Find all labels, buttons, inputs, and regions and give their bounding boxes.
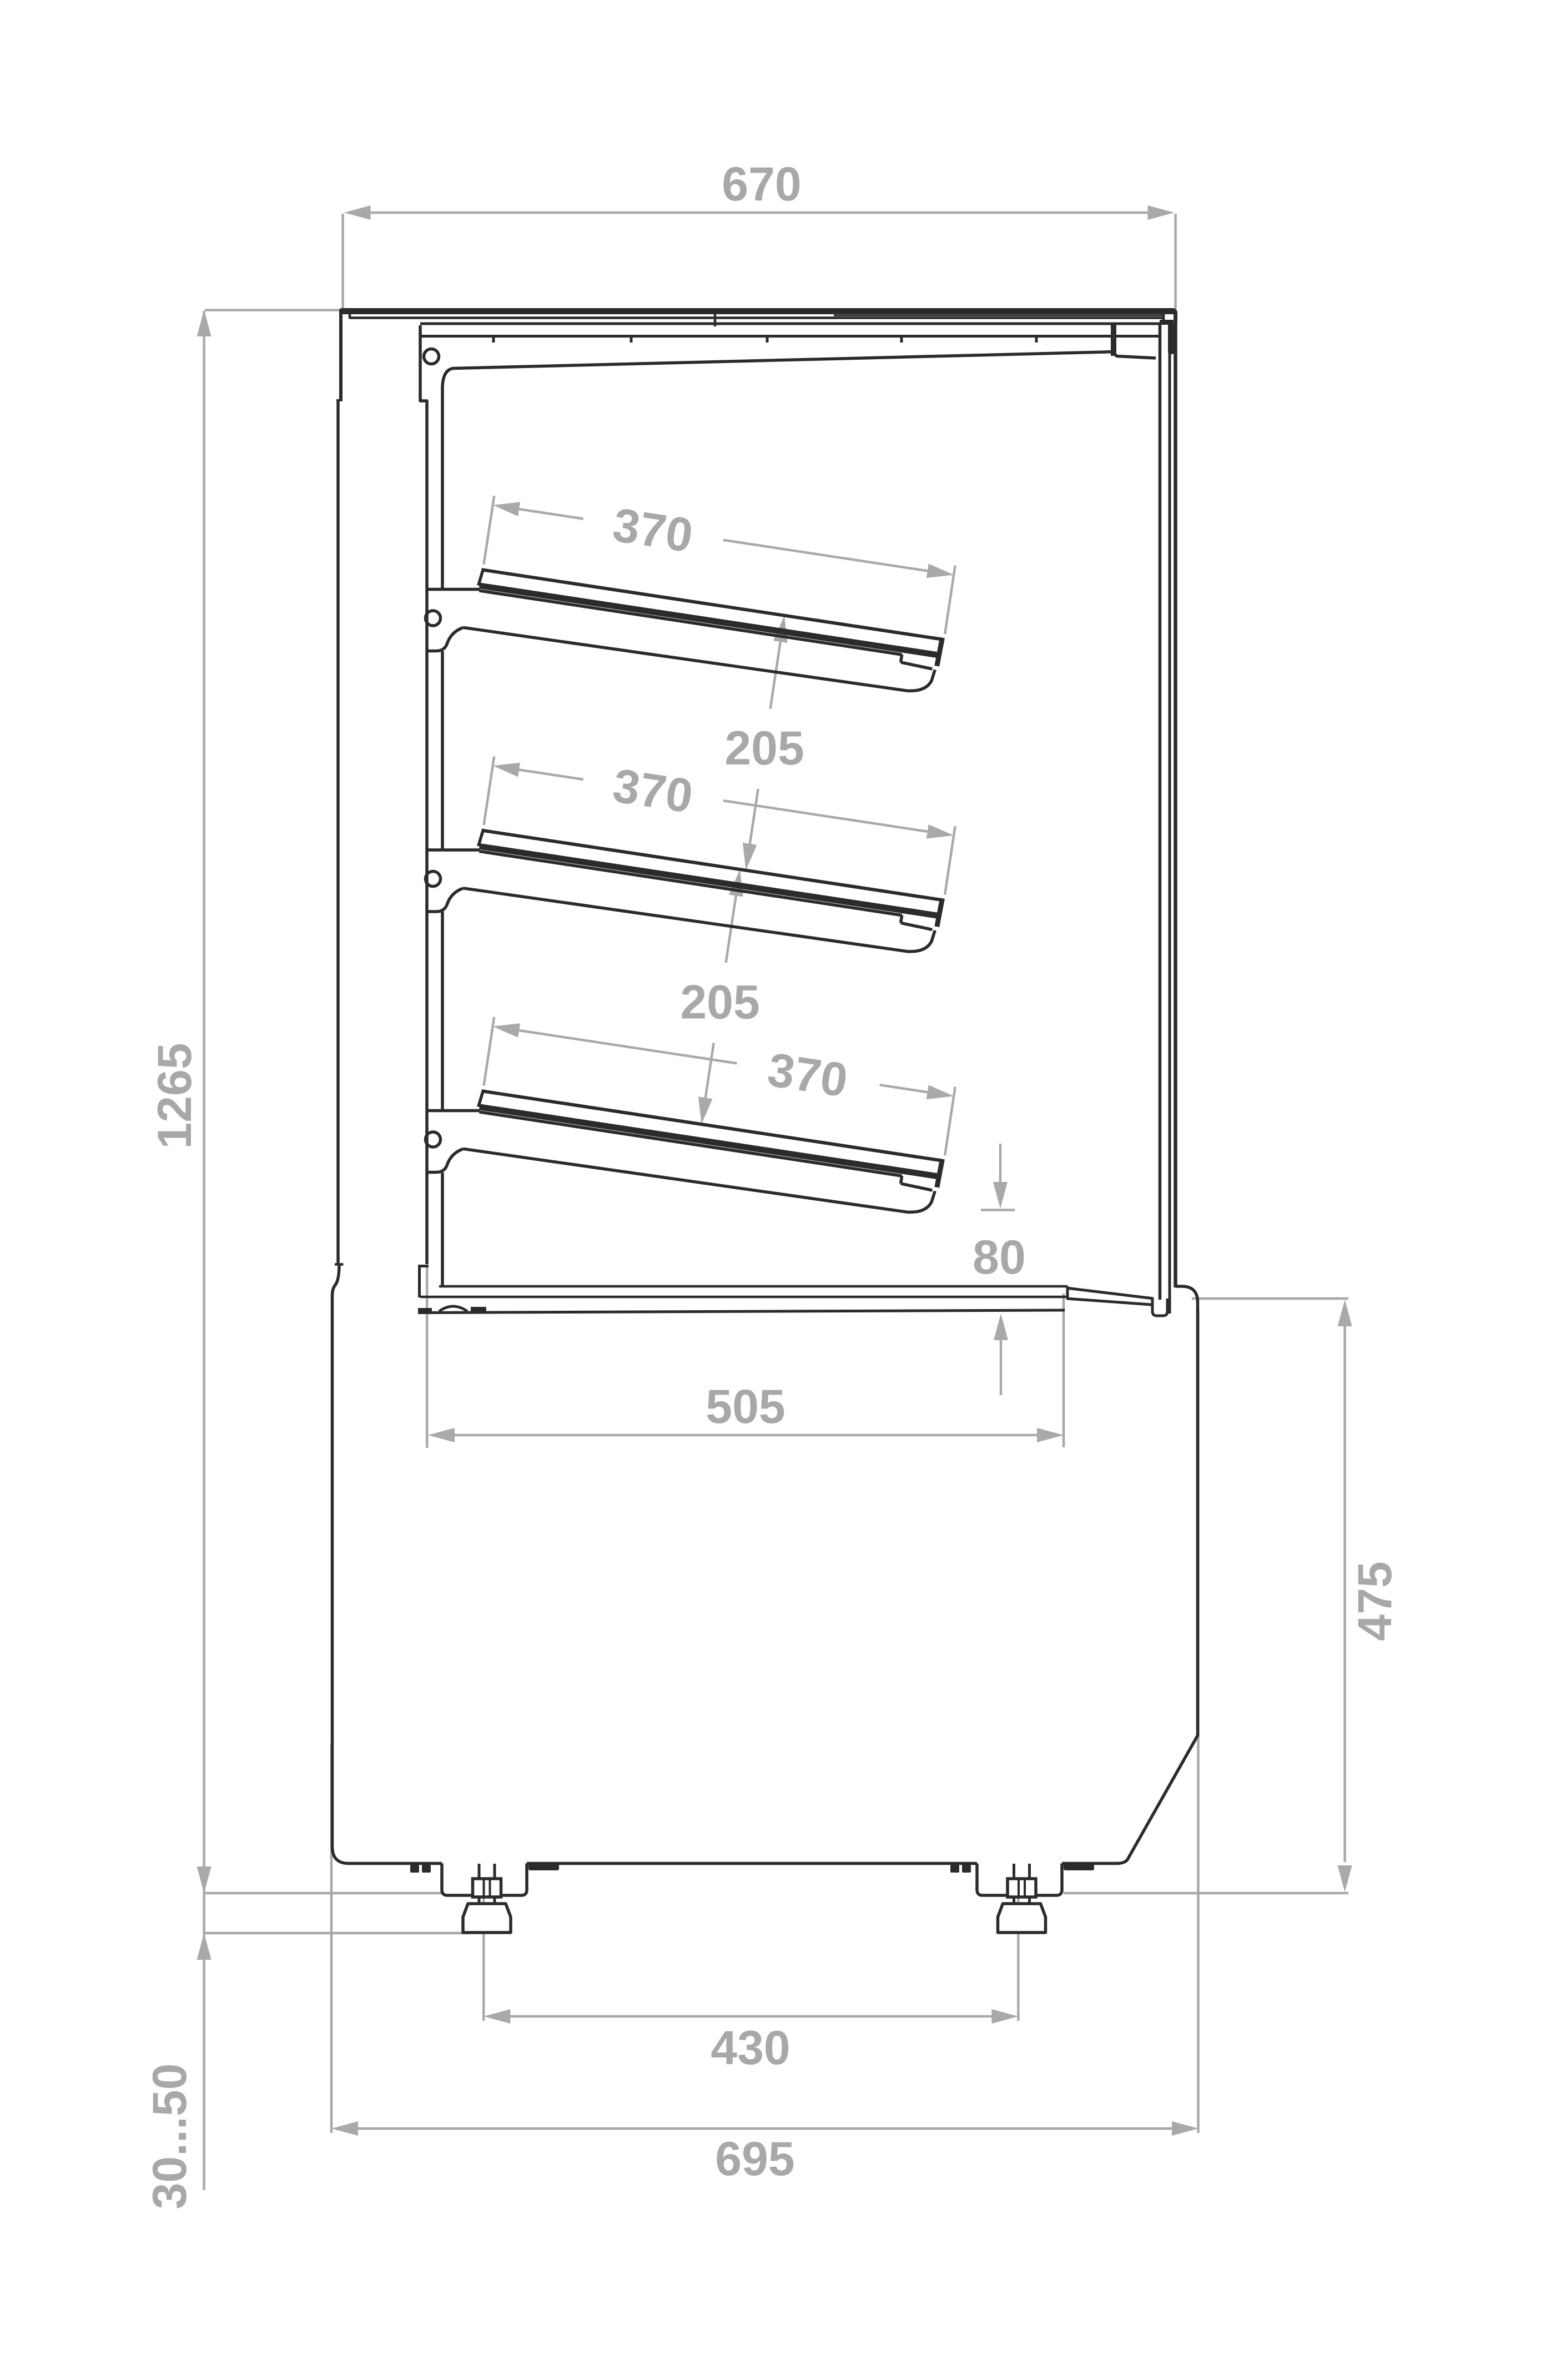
svg-text:505: 505: [706, 1380, 785, 1433]
svg-text:205: 205: [724, 722, 804, 775]
svg-text:205: 205: [680, 975, 760, 1029]
svg-text:30...50: 30...50: [143, 2064, 197, 2210]
svg-text:430: 430: [711, 2021, 790, 2075]
svg-text:475: 475: [1348, 1561, 1402, 1641]
svg-text:695: 695: [715, 2132, 795, 2186]
svg-text:670: 670: [722, 158, 802, 211]
svg-text:80: 80: [973, 1231, 1026, 1284]
svg-text:1265: 1265: [148, 1043, 202, 1149]
